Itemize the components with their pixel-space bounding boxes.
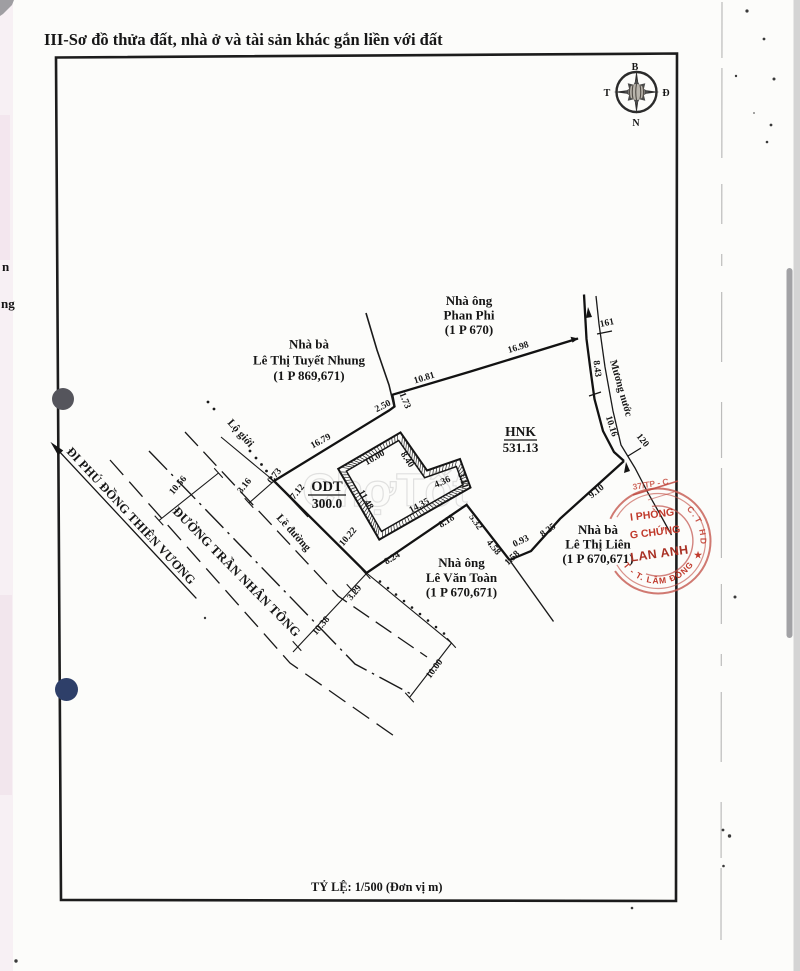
svg-text:10.22: 10.22 xyxy=(338,526,360,549)
svg-text:8.24: 8.24 xyxy=(383,550,403,567)
svg-text:2.50: 2.50 xyxy=(373,398,393,415)
svg-text:Phan Phi: Phan Phi xyxy=(444,308,495,323)
svg-text:300.0: 300.0 xyxy=(312,496,343,511)
svg-text:G CHỨNG: G CHỨNG xyxy=(629,522,681,541)
svg-text:TỶ LỆ: 1/500 (Đơn vị m): TỶ LỆ: 1/500 (Đơn vị m) xyxy=(311,880,443,894)
svg-text:120: 120 xyxy=(634,432,651,450)
svg-text:n: n xyxy=(2,259,10,274)
svg-text:531.13: 531.13 xyxy=(503,440,539,455)
svg-text:Nhà ông: Nhà ông xyxy=(438,555,485,570)
svg-text:5.32: 5.32 xyxy=(466,513,484,533)
svg-text:1.58: 1.58 xyxy=(503,549,522,568)
svg-text:Nhà bà: Nhà bà xyxy=(289,337,330,352)
svg-text:Mương nước: Mương nước xyxy=(607,359,634,418)
svg-text:ODT: ODT xyxy=(311,479,343,495)
svg-text:★: ★ xyxy=(694,550,703,560)
svg-text:(1 P 869,671): (1 P 869,671) xyxy=(273,368,344,383)
svg-text:Nhà ông: Nhà ông xyxy=(446,293,493,308)
svg-text:T: T xyxy=(604,88,611,99)
svg-text:10.56: 10.56 xyxy=(168,474,190,497)
svg-text:10.38: 10.38 xyxy=(311,615,333,638)
svg-text:10.00: 10.00 xyxy=(424,658,445,681)
svg-text:1.73: 1.73 xyxy=(397,391,413,410)
svg-text:Đ: Đ xyxy=(662,88,669,99)
svg-text:(1 P 670,671): (1 P 670,671) xyxy=(426,585,497,600)
svg-text:Lê Thị Tuyết Nhung: Lê Thị Tuyết Nhung xyxy=(253,353,366,368)
svg-text:HNK: HNK xyxy=(505,424,536,439)
svg-text:N: N xyxy=(632,118,640,129)
svg-text:ng: ng xyxy=(1,296,15,311)
svg-text:III-Sơ đồ thửa đất, nhà ở và t: III-Sơ đồ thửa đất, nhà ở và tài sản khá… xyxy=(44,30,443,49)
svg-text:(1 P 670): (1 P 670) xyxy=(445,322,493,337)
svg-text:8.43: 8.43 xyxy=(591,360,603,378)
svg-text:LAN ANH: LAN ANH xyxy=(629,543,689,565)
svg-text:I PHÒNG: I PHÒNG xyxy=(629,505,675,523)
svg-text:9.10: 9.10 xyxy=(587,483,606,501)
svg-text:4.58: 4.58 xyxy=(484,538,503,557)
svg-text:3.16: 3.16 xyxy=(236,476,254,495)
svg-text:Lê Thị Liên: Lê Thị Liên xyxy=(565,537,631,552)
svg-text:Nhà bà: Nhà bà xyxy=(578,522,619,537)
svg-text:(1 P 670,671): (1 P 670,671) xyxy=(562,551,633,566)
svg-text:Lộ giới: Lộ giới xyxy=(225,417,256,450)
svg-text:16.79: 16.79 xyxy=(309,432,333,451)
svg-text:Lê Văn Toàn: Lê Văn Toàn xyxy=(426,570,498,585)
svg-text:161: 161 xyxy=(599,317,615,330)
svg-text:0.93: 0.93 xyxy=(511,533,531,549)
svg-text:B: B xyxy=(632,62,639,73)
